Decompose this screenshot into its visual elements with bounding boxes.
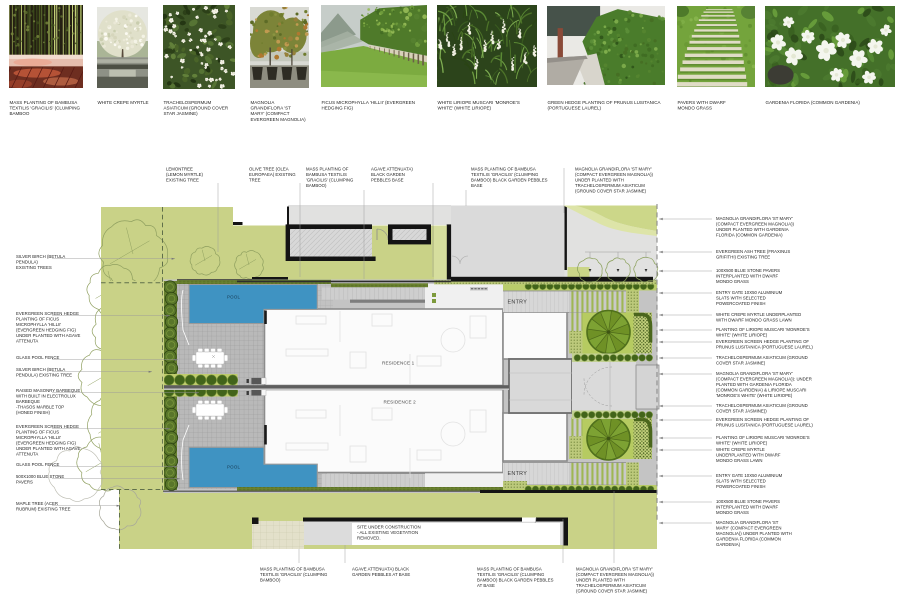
svg-text:EVERGREEN SCREEN HEDGE PLANTIN: EVERGREEN SCREEN HEDGE PLANTING OFPRUNUS…	[716, 417, 813, 427]
svg-text:ENTRY: ENTRY	[508, 300, 528, 306]
svg-text:GLASS POOL FENCE: GLASS POOL FENCE	[16, 462, 59, 467]
svg-text:POOL: POOL	[227, 465, 241, 470]
svg-text:RESIDENCE 2: RESIDENCE 2	[384, 400, 417, 405]
svg-text:GARDENIA FLORIDA (COMMON GARDE: GARDENIA FLORIDA (COMMON GARDENIA)	[766, 100, 861, 105]
svg-text:POOL: POOL	[227, 295, 241, 300]
svg-text:WHITE CREPE MYRTLE: WHITE CREPE MYRTLE	[98, 100, 149, 105]
svg-text:EVERGREEN SCREEN HEDGE PLANTIN: EVERGREEN SCREEN HEDGE PLANTING OFPRUNUS…	[716, 339, 813, 349]
svg-text:GLASS POOL FENCE: GLASS POOL FENCE	[16, 355, 59, 360]
svg-text:ENTRY: ENTRY	[508, 471, 528, 477]
svg-text:WHITE CREPE MYRTLE UNDERPLANTE: WHITE CREPE MYRTLE UNDERPLANTEDWITH DWAR…	[716, 312, 801, 322]
svg-text:RESIDENCE 1: RESIDENCE 1	[382, 361, 415, 366]
svg-text:SILVER BIRCH (BETULAPENDULA): SILVER BIRCH (BETULAPENDULA) EXISTING TR…	[16, 367, 72, 377]
svg-text:AGAVE ATTENUATA) BLACKGARDEN P: AGAVE ATTENUATA) BLACKGARDEN PEBBLES AT …	[352, 567, 410, 577]
